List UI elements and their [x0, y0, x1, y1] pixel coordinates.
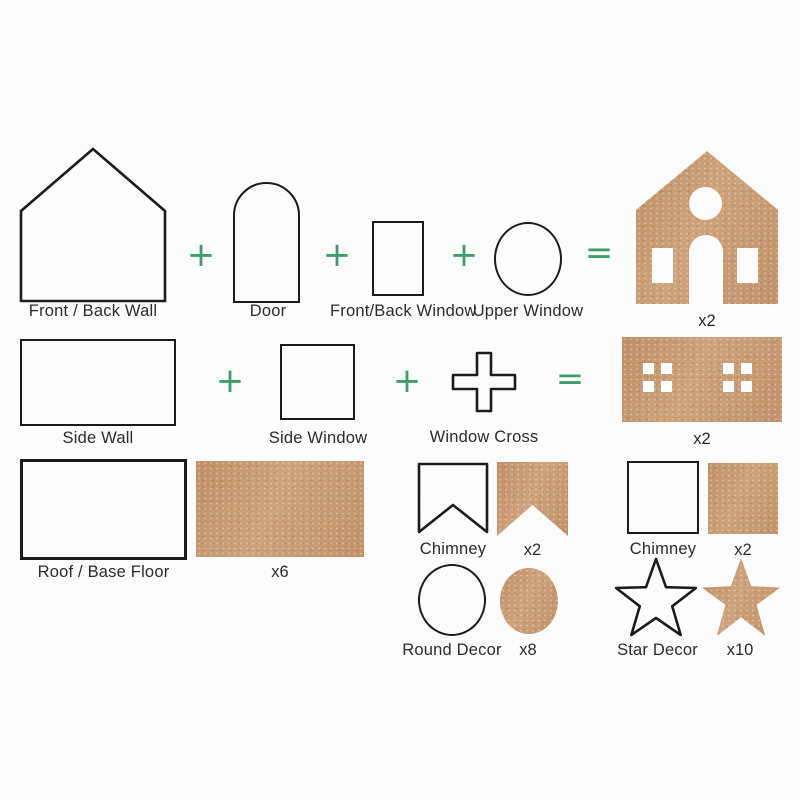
round-decor-count: x8: [495, 641, 561, 660]
door-outline-shape: [233, 182, 300, 303]
side-window-cutout: [661, 381, 672, 392]
assembly-diagram: Front / Back Wall + Door + Front/Back Wi…: [0, 0, 800, 800]
front-back-window-label: Front/Back Window: [330, 302, 466, 320]
front-back-wall-label: Front / Back Wall: [18, 302, 168, 320]
chimney-front-label: Chimney: [412, 540, 494, 558]
side-window-cutout: [643, 363, 654, 374]
side-wall-label: Side Wall: [20, 429, 176, 447]
round-decor-outline-shape: [418, 564, 486, 636]
round-decor-label: Round Decor: [398, 641, 506, 659]
star-decor-label: Star Decor: [605, 641, 710, 659]
chimney-side-kraft-piece: [708, 463, 778, 534]
round-decor-kraft-piece: [500, 568, 558, 634]
plus-icon-5: +: [390, 364, 424, 398]
chimney-side-count: x2: [708, 541, 778, 560]
star-decor-outline-shape: [612, 555, 700, 639]
plus-icon-1: +: [184, 238, 218, 272]
assembled-side-wall-piece: [622, 337, 782, 422]
upper-window-label: Upper Window: [460, 302, 596, 320]
side-wall-count: x2: [622, 430, 782, 449]
side-window-cutout: [741, 363, 752, 374]
roof-kraft-piece: [196, 461, 364, 557]
roof-base-floor-outline-shape: [20, 459, 187, 560]
plus-icon-3: +: [447, 238, 481, 272]
star-decor-count: x10: [700, 641, 780, 660]
side-window-cutout: [661, 363, 672, 374]
house-door-cutout: [689, 235, 723, 304]
equals-icon-1: =: [582, 236, 616, 270]
side-window-label: Side Window: [260, 429, 376, 447]
side-window-cutout: [723, 381, 734, 392]
front-back-wall-outline-shape: [18, 146, 168, 304]
roof-base-floor-label: Roof / Base Floor: [20, 563, 187, 581]
equals-icon-2: =: [553, 362, 587, 396]
side-window-cutout: [741, 381, 752, 392]
plus-icon-4: +: [213, 364, 247, 398]
chimney-side-outline-shape: [627, 461, 699, 534]
chimney-front-count: x2: [497, 541, 568, 560]
chimney-front-kraft-piece: [497, 462, 568, 536]
side-window-cutout: [643, 381, 654, 392]
side-window-outline-shape: [280, 344, 355, 420]
roof-count: x6: [196, 563, 364, 582]
side-wall-outline-shape: [20, 339, 176, 426]
plus-icon-2: +: [320, 238, 354, 272]
upper-window-outline-shape: [494, 222, 562, 296]
house-round-window-cutout: [689, 187, 722, 220]
window-cross-label: Window Cross: [426, 428, 542, 446]
assembled-front-wall-piece: [636, 151, 778, 304]
chimney-front-outline-shape: [416, 461, 490, 535]
star-decor-kraft-piece: [702, 558, 780, 636]
house-right-window-cutout: [737, 248, 758, 283]
door-label: Door: [223, 302, 313, 320]
house-left-window-cutout: [652, 248, 673, 283]
front-wall-count: x2: [636, 312, 778, 331]
front-back-window-outline-shape: [372, 221, 424, 296]
side-window-cutout: [723, 363, 734, 374]
window-cross-outline-shape: [451, 351, 517, 413]
